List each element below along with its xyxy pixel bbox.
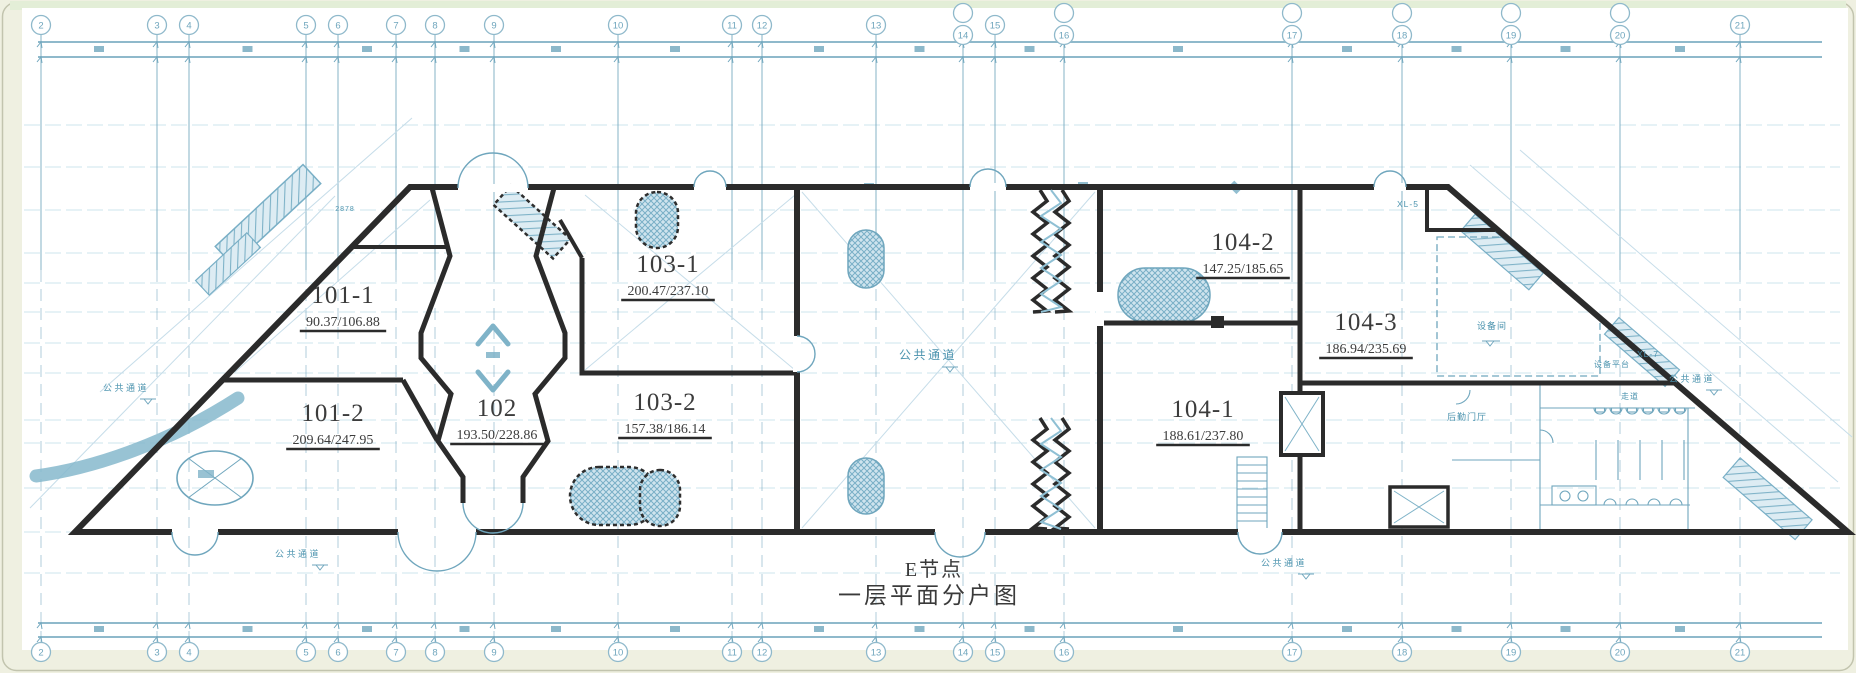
- unit-area: 147.25/185.65: [1203, 262, 1284, 277]
- dim-text-blob: [1173, 46, 1183, 52]
- unit-area: 188.61/237.80: [1163, 429, 1244, 444]
- door-gap: [793, 336, 801, 372]
- grid-bubble-label: 5: [303, 20, 308, 31]
- corridor-label: 公共通道: [275, 548, 321, 559]
- grid-bubble-label: 4: [186, 647, 191, 658]
- dim-text-blob: [670, 46, 680, 52]
- grid-bubble-label: 17: [1287, 30, 1298, 41]
- grid-bubble-label: 3: [154, 20, 159, 31]
- dim-text-blob: [1452, 46, 1462, 52]
- dim-text-blob: [460, 46, 470, 52]
- door-gap: [1096, 292, 1104, 326]
- dim-text-blob: [915, 46, 925, 52]
- grid-bubble-label: 11: [727, 647, 737, 658]
- annotation-label: 设备间: [1477, 320, 1507, 331]
- door-gap: [398, 528, 476, 536]
- dim-text-blob: [915, 626, 925, 632]
- grid-bubble-label: 13: [871, 647, 882, 658]
- unit-number: 104-1: [1171, 396, 1234, 423]
- unit-area: 90.37/106.88: [306, 315, 380, 330]
- floor-plan-page: 2233445566778899101011111212131314141515…: [0, 0, 1856, 673]
- grid-bubble-label: 21: [1735, 647, 1746, 658]
- grid-bubble-top-secondary: [954, 4, 973, 23]
- grid-bubble-label: 21: [1735, 20, 1746, 31]
- grid-bubble-top-secondary: [1611, 4, 1630, 23]
- grid-bubble-label: 9: [491, 647, 496, 658]
- plan-title-node: E节点: [905, 558, 963, 581]
- door-gap: [1238, 528, 1282, 536]
- unit-number: 101-1: [311, 282, 374, 309]
- stair-obround-corridor-top: [848, 230, 884, 288]
- wall-pier: [1211, 316, 1224, 328]
- door-gap: [458, 184, 528, 192]
- grid-bubble-label: 16: [1059, 647, 1070, 658]
- dim-text-blob: [1342, 626, 1352, 632]
- grid-bubble-top-secondary: [1502, 4, 1521, 23]
- grid-bubble-top-secondary: [1393, 4, 1412, 23]
- annotation-label: XL-7: [1637, 349, 1659, 359]
- annotation-label: 2878: [335, 206, 355, 213]
- dim-text-blob: [460, 626, 470, 632]
- dim-text-blob: [1342, 46, 1352, 52]
- unit-number: 102: [477, 395, 518, 422]
- dim-text-blob: [243, 626, 253, 632]
- grid-bubble-label: 2: [38, 20, 43, 31]
- grid-bubble-label: 14: [958, 30, 969, 41]
- dim-text-blob: [551, 626, 561, 632]
- dim-text-blob: [1173, 626, 1183, 632]
- grid-bubble-label: 20: [1615, 647, 1626, 658]
- dim-text-blob: [1561, 46, 1571, 52]
- grid-bubble-label: 19: [1506, 30, 1517, 41]
- grid-bubble-label: 14: [958, 647, 969, 658]
- dim-text-blob: [362, 626, 372, 632]
- grid-bubble-label: 15: [990, 20, 1001, 31]
- grid-bubble-label: 10: [613, 20, 624, 31]
- grid-bubble-label: 8: [432, 647, 437, 658]
- grid-bubble-label: 9: [491, 20, 496, 31]
- dim-text-blob: [814, 626, 824, 632]
- unit-area: 157.38/186.14: [625, 422, 706, 437]
- grid-bubble-label: 20: [1615, 30, 1626, 41]
- plan-title-main: 一层平面分户图: [838, 583, 1020, 608]
- grid-bubble-label: 3: [154, 647, 159, 658]
- annotation-label: XL-5: [1397, 199, 1419, 209]
- stair-obround-corridor-bottom: [848, 458, 884, 514]
- grid-bubble-label: 19: [1506, 647, 1517, 658]
- dim-text-blob: [1025, 46, 1035, 52]
- dim-text-blob: [362, 46, 372, 52]
- unit-area: 186.94/235.69: [1326, 342, 1407, 357]
- dim-text-blob: [94, 626, 104, 632]
- grid-bubble-label: 13: [871, 20, 882, 31]
- door-gap: [172, 528, 218, 536]
- annotation-label: 后勤门厅: [1447, 411, 1487, 422]
- annotation-label: 走道: [1621, 391, 1639, 401]
- dim-text-blob: [670, 626, 680, 632]
- grid-bubble-label: 15: [990, 647, 1001, 658]
- grid-bubble-top-secondary: [1283, 4, 1302, 23]
- corridor-label: 公共通道: [1669, 373, 1715, 384]
- dim-text-blob: [551, 46, 561, 52]
- door-gap: [970, 183, 1006, 191]
- grid-bubble-label: 7: [393, 647, 398, 658]
- grid-bubble-label: 4: [186, 20, 191, 31]
- dim-text-blob: [1675, 626, 1685, 632]
- grid-bubble-label: 11: [727, 20, 737, 31]
- grid-bubble-label: 8: [432, 20, 437, 31]
- stair-obround-top: [636, 192, 678, 248]
- dim-text-blob: [1025, 626, 1035, 632]
- annotation-label: 设备平台: [1594, 359, 1630, 369]
- grid-bubble-label: 16: [1059, 30, 1070, 41]
- grid-bubble-label: 12: [757, 647, 768, 658]
- unit-number: 101-2: [301, 400, 364, 427]
- door-gap: [935, 528, 985, 536]
- grid-bubble-label: 12: [757, 20, 768, 31]
- grid-bubble-label: 17: [1287, 647, 1298, 658]
- grid-bubble-label: 6: [335, 647, 340, 658]
- hatched-obround-104-2: [1118, 268, 1210, 322]
- unit-area: 200.47/237.10: [628, 284, 709, 299]
- unit-number: 103-1: [636, 251, 699, 278]
- corridor-label: 公共通道: [1261, 557, 1307, 568]
- grid-bubble-label: 6: [335, 20, 340, 31]
- door-gap: [694, 183, 726, 191]
- grid-bubble-label: 7: [393, 20, 398, 31]
- unit-number: 104-2: [1211, 229, 1274, 256]
- grid-bubble-label: 5: [303, 647, 308, 658]
- unit-number: 103-2: [633, 389, 696, 416]
- dim-text-blob: [1561, 626, 1571, 632]
- door-gap: [1374, 183, 1406, 191]
- dim-text-blob: [814, 46, 824, 52]
- dim-text-blob: [243, 46, 253, 52]
- grid-bubble-label: 10: [613, 647, 624, 658]
- dim-text-blob: [94, 46, 104, 52]
- corridor-label: 公共通道: [899, 348, 957, 362]
- grid-bubble-label: 2: [38, 647, 43, 658]
- unit-area: 193.50/228.86: [457, 428, 538, 443]
- dim-text-blob: [1675, 46, 1685, 52]
- grid-bubble-top-secondary: [1055, 4, 1074, 23]
- unit-area: 209.64/247.95: [293, 433, 374, 448]
- unit-number: 104-3: [1334, 309, 1397, 336]
- grid-bubble-label: 18: [1397, 30, 1408, 41]
- grid-bubble-label: 18: [1397, 647, 1408, 658]
- dim-text-blob: [1452, 626, 1462, 632]
- corridor-label: 公共通道: [103, 382, 149, 393]
- floor-plan-svg: 2233445566778899101011111212131314141515…: [0, 0, 1856, 673]
- stair-obround-bottom-2: [640, 470, 680, 526]
